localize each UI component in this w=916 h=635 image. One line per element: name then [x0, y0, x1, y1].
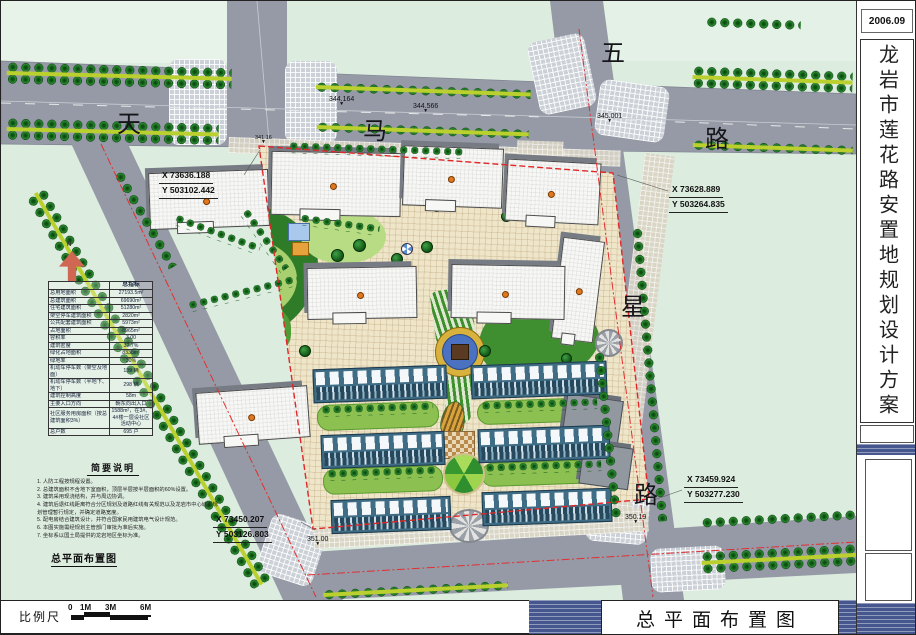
indicator-row: 架空停车建筑面积2820m² — [49, 312, 153, 320]
elevation-marker-icon: ▼ — [625, 521, 646, 524]
tree-icon — [331, 249, 344, 262]
entrance-dot — [502, 291, 509, 298]
apartment-tower — [451, 264, 566, 320]
crosswalk-hatch — [593, 78, 670, 143]
apartment-tower — [195, 385, 310, 445]
note-item: 4. 建筑后退红线距离符合分区规划及道路红线有关规范以及龙岩市中心城市规划管理暂… — [37, 502, 219, 517]
indicators-table: 总指标总用地面积27193.5m²总建筑面积69690m²住宅建筑面积51280… — [48, 281, 153, 436]
north-label: N — [67, 242, 71, 248]
elevation-label: 351.00▼ — [307, 536, 328, 546]
indicator-row: 总户数695 户 — [49, 428, 153, 436]
road-name-tianma-3: 路 — [705, 119, 729, 154]
elevation-label: 350.19▼ — [625, 514, 646, 524]
indicator-row: 公共配套建筑面积5973m² — [49, 320, 153, 328]
elevation-marker-icon: ▼ — [597, 120, 622, 123]
tree-icon — [353, 239, 366, 252]
indicator-row: 住宅建筑面积51280m² — [49, 305, 153, 313]
indicator-row: 主要入口方向朝东向出入口 — [49, 400, 153, 408]
townhouse-row — [477, 425, 610, 464]
plan-caption: 总平面布置图 — [51, 550, 117, 567]
parasol-icon — [401, 243, 413, 255]
elevation-label: 344.566▼ — [413, 103, 438, 113]
indicator-row: 建筑控制高度58m — [49, 393, 153, 401]
indicator-row: 社区服务用房面积（按总建筑面积3%）1588m²，在3#、4#楼一层设社区活动中… — [49, 408, 153, 429]
entrance-dot — [548, 191, 555, 198]
entrance-dot — [203, 198, 210, 205]
scale-bar-segment — [84, 612, 110, 616]
site-plan-map: 天 马 路 五 星 路 344.164▼ 344.566▼ 345.001▼ 3… — [1, 1, 856, 600]
date-box: 2006.09 — [861, 9, 913, 33]
scale-bar-segment — [71, 616, 84, 620]
project-title-box: 龙岩市莲花路安置地规划设计方案 — [860, 39, 914, 423]
elevation-marker-icon: ▼ — [413, 110, 438, 113]
apartment-tower — [504, 159, 601, 226]
townhouse-row — [481, 488, 612, 527]
sidebar-box — [865, 553, 912, 601]
indicator-row: 绿地率30% — [49, 357, 153, 365]
tree-icon — [391, 253, 403, 265]
pavilion-block — [292, 242, 309, 256]
townhouse-row — [312, 365, 447, 404]
note-item: 5. 配电房结合建筑设计，并符合国家民用建筑电气设计规范。 — [37, 517, 219, 525]
elevation-label: 345.001▼ — [597, 113, 622, 123]
road-name-wuxing-2: 星 — [621, 287, 645, 322]
north-stub-road — [227, 1, 287, 79]
scale-tick: 1M — [80, 603, 91, 612]
coordinate-callout-nw: X 73636.188Y 503102.442 — [159, 169, 218, 199]
indicator-row: 总建筑面积69690m² — [49, 297, 153, 305]
apartment-tower — [307, 266, 418, 320]
title-band-left — [529, 600, 601, 635]
elevation-marker-icon: ▼ — [329, 103, 354, 106]
coordinate-callout-sw: X 73450.207Y 503126.803 — [213, 513, 272, 543]
notes-title: 简要说明 — [87, 461, 139, 476]
scale-tick: 3M — [105, 603, 116, 612]
note-item: 3. 建筑采用现浇结构，并与周边协调。 — [37, 494, 219, 502]
indicator-row: 容积率3.00 — [49, 335, 153, 343]
scale-tick: 6M — [140, 603, 151, 612]
scale-bar-segment — [110, 616, 148, 620]
tree-icon — [421, 241, 433, 253]
road-name-tianma-1: 天 — [117, 104, 141, 139]
note-item: 7. 坐标系以国土局提供的龙岩地区坐标为准。 — [37, 533, 219, 541]
townhouse-row — [330, 496, 451, 534]
indicator-row: 占地面积8965m² — [49, 327, 153, 335]
elevation-marker-icon: ▼ — [255, 141, 272, 144]
tree-icon — [479, 345, 491, 357]
drawing-sheet: 天 马 路 五 星 路 344.164▼ 344.566▼ 345.001▼ 3… — [0, 0, 916, 635]
entrance-dot — [247, 414, 254, 421]
sidebar-band — [857, 603, 916, 635]
indicator-row: 绿化占地面积8338m² — [49, 350, 153, 358]
drawing-title: 总平面布置图 — [601, 600, 839, 635]
notes-list: 1. 人防工程按规程设置。2. 总建筑面积不含地下室面积，顶层半层按半层面积的6… — [37, 479, 219, 540]
scale-label: 比例尺 — [19, 608, 61, 625]
elevation-marker-icon: ▼ — [307, 543, 328, 546]
scale-strip: 比例尺 0 1M 3M 6M — [1, 600, 529, 635]
elevation-label: 344.164▼ — [329, 96, 354, 106]
townhouse-row — [320, 431, 445, 469]
coordinate-callout-ne: X 73628.889Y 503264.835 — [669, 183, 728, 213]
elevation-label: 341.16▼ — [255, 135, 272, 144]
indicator-row: 机动车停车数（半地下、地下）298 辆 — [49, 379, 153, 393]
entrance-dot — [329, 183, 336, 190]
tree-icon — [299, 345, 311, 357]
sidebar-box — [865, 459, 912, 551]
road-name-tianma-2: 马 — [363, 111, 387, 146]
sidebar-band — [857, 444, 916, 455]
road-name-wuxing-1: 五 — [601, 33, 625, 68]
fountain-center — [451, 344, 469, 360]
scale-tick: 0 — [68, 603, 72, 612]
sidebar-box — [860, 425, 914, 443]
entrance-dot — [575, 288, 583, 296]
townhouse-row — [470, 361, 607, 400]
entrance-dot — [357, 292, 364, 299]
indicator-row: 机动车停车数（架空及地面）139 辆 — [49, 365, 153, 379]
coordinate-callout-se: X 73459.924Y 503277.230 — [684, 473, 743, 503]
road-name-wuxing-3: 路 — [634, 475, 658, 510]
indicator-row: 总用地面积27193.5m² — [49, 290, 153, 298]
note-item: 6. 本图实施需经规划主管部门审批为准后实施。 — [37, 525, 219, 533]
apartment-tower — [270, 151, 401, 217]
entrance-dot — [448, 176, 455, 183]
project-title: 龙岩市莲花路安置地规划设计方案 — [873, 44, 902, 419]
note-item: 1. 人防工程按规程设置。 — [37, 479, 219, 487]
title-sidebar: 2006.09 龙岩市莲花路安置地规划设计方案 — [856, 1, 916, 635]
indicator-row: 建筑密度32.7% — [49, 342, 153, 350]
